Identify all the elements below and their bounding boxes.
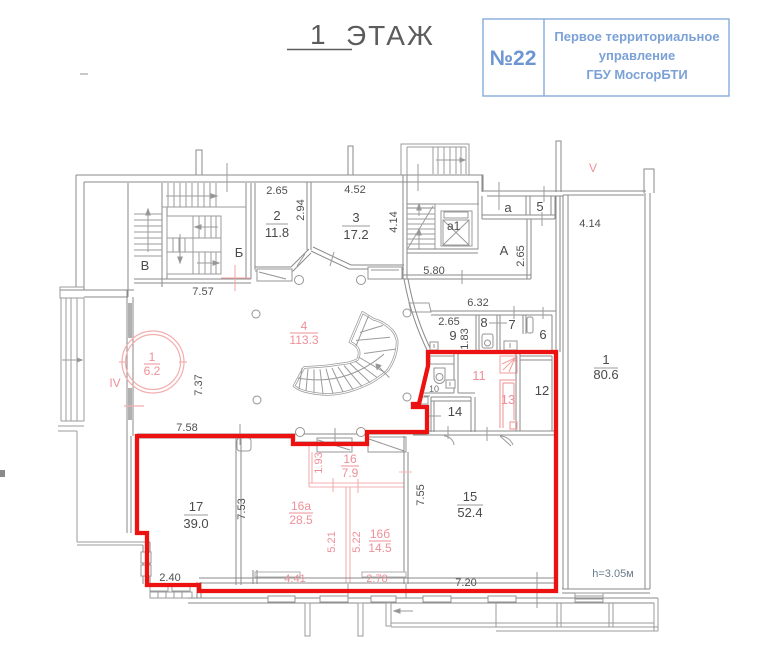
svg-text:4.14: 4.14: [388, 211, 400, 232]
svg-text:28.5: 28.5: [289, 513, 313, 527]
svg-text:1.83: 1.83: [459, 328, 471, 349]
svg-text:7.9: 7.9: [342, 466, 359, 480]
svg-text:7.55: 7.55: [415, 484, 427, 505]
svg-text:15: 15: [463, 489, 477, 504]
svg-text:16а: 16а: [291, 499, 311, 513]
svg-text:4.41: 4.41: [284, 573, 305, 585]
svg-text:11.8: 11.8: [265, 225, 289, 240]
svg-text:14.5: 14.5: [368, 541, 392, 555]
svg-text:1: 1: [310, 19, 326, 50]
svg-text:52.4: 52.4: [457, 505, 482, 520]
svg-text:3: 3: [352, 210, 359, 225]
svg-text:7: 7: [508, 317, 515, 332]
svg-text:2.94: 2.94: [295, 199, 307, 220]
svg-text:16: 16: [343, 452, 357, 466]
svg-text:6: 6: [539, 327, 546, 342]
svg-text:17.2: 17.2: [343, 227, 368, 242]
svg-text:Б: Б: [235, 245, 244, 260]
svg-text:2.65: 2.65: [266, 185, 287, 197]
svg-text:7.58: 7.58: [176, 422, 197, 434]
svg-text:10: 10: [429, 384, 439, 394]
svg-text:ГБУ МосгорБТИ: ГБУ МосгорБТИ: [586, 67, 687, 82]
svg-text:а1: а1: [447, 219, 461, 233]
svg-text:Первое территориальное: Первое территориальное: [554, 29, 719, 44]
svg-text:17: 17: [189, 499, 203, 514]
svg-text:11: 11: [472, 368, 486, 383]
svg-text:5.21: 5.21: [326, 531, 338, 552]
svg-text:h=3.05м: h=3.05м: [592, 568, 634, 580]
svg-text:4.14: 4.14: [579, 218, 600, 230]
svg-text:8: 8: [480, 315, 487, 330]
svg-text:V: V: [589, 161, 597, 175]
svg-text:2.78: 2.78: [366, 573, 387, 585]
svg-text:13: 13: [501, 392, 515, 407]
svg-text:39.0: 39.0: [183, 516, 208, 531]
svg-text:а: а: [504, 200, 512, 215]
svg-text:7.57: 7.57: [192, 286, 213, 298]
svg-text:А: А: [500, 243, 509, 258]
svg-text:9: 9: [449, 328, 456, 343]
svg-text:14: 14: [448, 404, 462, 419]
svg-text:4: 4: [301, 319, 308, 333]
svg-text:6.2: 6.2: [144, 364, 161, 378]
svg-text:В: В: [141, 258, 150, 273]
svg-text:2: 2: [273, 208, 280, 223]
svg-text:7.37: 7.37: [193, 374, 205, 395]
svg-text:12: 12: [535, 383, 549, 398]
svg-text:7.20: 7.20: [455, 577, 476, 589]
svg-text:5.80: 5.80: [423, 265, 444, 277]
svg-text:ЭТАЖ: ЭТАЖ: [346, 20, 435, 51]
svg-text:1.93: 1.93: [313, 452, 325, 473]
svg-text:1: 1: [602, 352, 609, 367]
svg-text:16б: 16б: [370, 527, 390, 541]
svg-text:7.53: 7.53: [236, 498, 248, 519]
svg-text:2.65: 2.65: [515, 245, 527, 266]
svg-text:управление: управление: [599, 48, 675, 63]
svg-text:№22: №22: [490, 47, 537, 70]
svg-text:1: 1: [149, 350, 156, 364]
svg-text:5: 5: [536, 199, 543, 214]
svg-text:IV: IV: [109, 376, 120, 390]
svg-text:5.22: 5.22: [351, 531, 363, 552]
svg-text:2.65: 2.65: [438, 316, 459, 328]
svg-text:2.40: 2.40: [159, 572, 180, 584]
svg-text:4.52: 4.52: [344, 184, 365, 196]
svg-text:6.32: 6.32: [467, 297, 488, 309]
svg-text:80.6: 80.6: [593, 367, 618, 382]
svg-text:113.3: 113.3: [289, 333, 318, 347]
